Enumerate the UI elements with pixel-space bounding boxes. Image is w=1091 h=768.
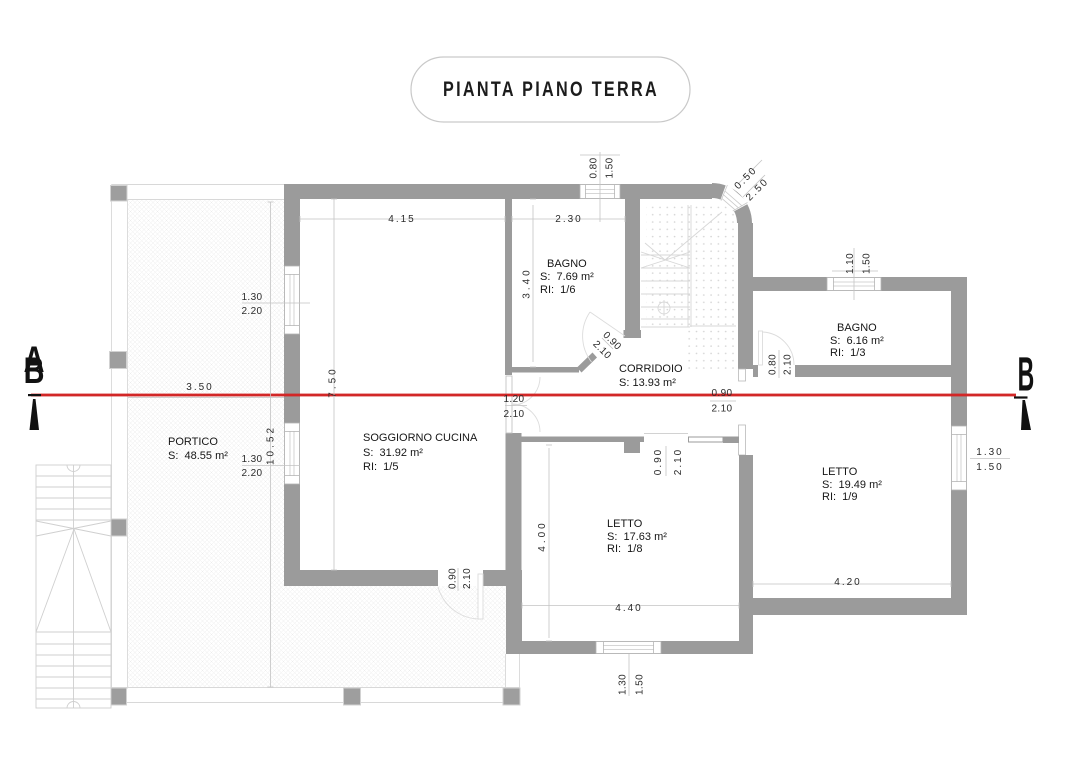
svg-text:S: 13.93 m²: S: 13.93 m² — [619, 377, 676, 389]
svg-text:0.80: 0.80 — [589, 157, 600, 178]
svg-text:2.10: 2.10 — [503, 409, 524, 420]
svg-text:4.00: 4.00 — [537, 520, 548, 551]
svg-text:1.20: 1.20 — [503, 394, 524, 405]
svg-text:1.30: 1.30 — [976, 447, 1003, 458]
svg-text:BAGNO: BAGNO — [547, 258, 587, 270]
svg-text:1.50: 1.50 — [605, 157, 616, 178]
svg-text:RI: 1/6: RI: 1/6 — [540, 284, 575, 296]
svg-text:2.10: 2.10 — [673, 448, 684, 475]
svg-text:0.90: 0.90 — [653, 448, 664, 475]
svg-text:PORTICO: PORTICO — [168, 436, 218, 448]
svg-text:4.40: 4.40 — [615, 603, 642, 614]
svg-text:BAGNO: BAGNO — [837, 322, 877, 334]
svg-text:0.80: 0.80 — [768, 354, 779, 375]
svg-text:RI: 1/8: RI: 1/8 — [607, 543, 642, 555]
svg-text:RI: 1/3: RI: 1/3 — [830, 347, 865, 359]
svg-text:CORRIDOIO: CORRIDOIO — [619, 363, 683, 375]
svg-text:2.10: 2.10 — [462, 568, 473, 589]
svg-text:2.10: 2.10 — [711, 404, 732, 415]
svg-text:B: B — [24, 351, 45, 392]
svg-text:S: 31.92 m²: S: 31.92 m² — [363, 447, 423, 459]
svg-text:4.15: 4.15 — [388, 214, 415, 225]
svg-text:S: 17.63 m²: S: 17.63 m² — [607, 531, 667, 543]
svg-text:1.30: 1.30 — [618, 674, 629, 695]
svg-text:1.50: 1.50 — [976, 462, 1003, 473]
svg-text:1.10: 1.10 — [845, 253, 856, 274]
svg-text:2.10: 2.10 — [783, 354, 794, 375]
svg-text:2.30: 2.30 — [555, 214, 582, 225]
svg-text:0.90: 0.90 — [448, 568, 459, 589]
svg-text:1.50: 1.50 — [862, 253, 873, 274]
svg-text:1.50: 1.50 — [635, 674, 646, 695]
svg-text:3.50: 3.50 — [186, 382, 213, 393]
svg-text:3.40: 3.40 — [522, 267, 533, 298]
svg-text:1.30: 1.30 — [241, 454, 262, 465]
svg-text:10.52: 10.52 — [266, 425, 277, 465]
svg-text:S: 19.49 m²: S: 19.49 m² — [822, 479, 882, 491]
svg-text:4.20: 4.20 — [834, 577, 861, 588]
svg-text:S: 48.55 m²: S: 48.55 m² — [168, 450, 228, 462]
svg-text:1.30: 1.30 — [241, 292, 262, 303]
svg-text:0.90: 0.90 — [711, 388, 732, 399]
svg-text:2.20: 2.20 — [241, 306, 262, 317]
svg-text:RI: 1/5: RI: 1/5 — [363, 461, 398, 473]
svg-text:SOGGIORNO CUCINA: SOGGIORNO CUCINA — [363, 432, 478, 444]
svg-text:B: B — [1018, 347, 1035, 401]
svg-text:2.20: 2.20 — [241, 468, 262, 479]
svg-text:LETTO: LETTO — [822, 466, 858, 478]
svg-text:7.50: 7.50 — [328, 366, 339, 397]
svg-text:S: 7.69 m²: S: 7.69 m² — [540, 271, 594, 283]
svg-text:S: 6.16 m²: S: 6.16 m² — [830, 335, 884, 347]
svg-text:PIANTA PIANO TERRA: PIANTA PIANO TERRA — [443, 78, 659, 101]
svg-text:LETTO: LETTO — [607, 518, 643, 530]
svg-text:RI: 1/9: RI: 1/9 — [822, 491, 857, 503]
